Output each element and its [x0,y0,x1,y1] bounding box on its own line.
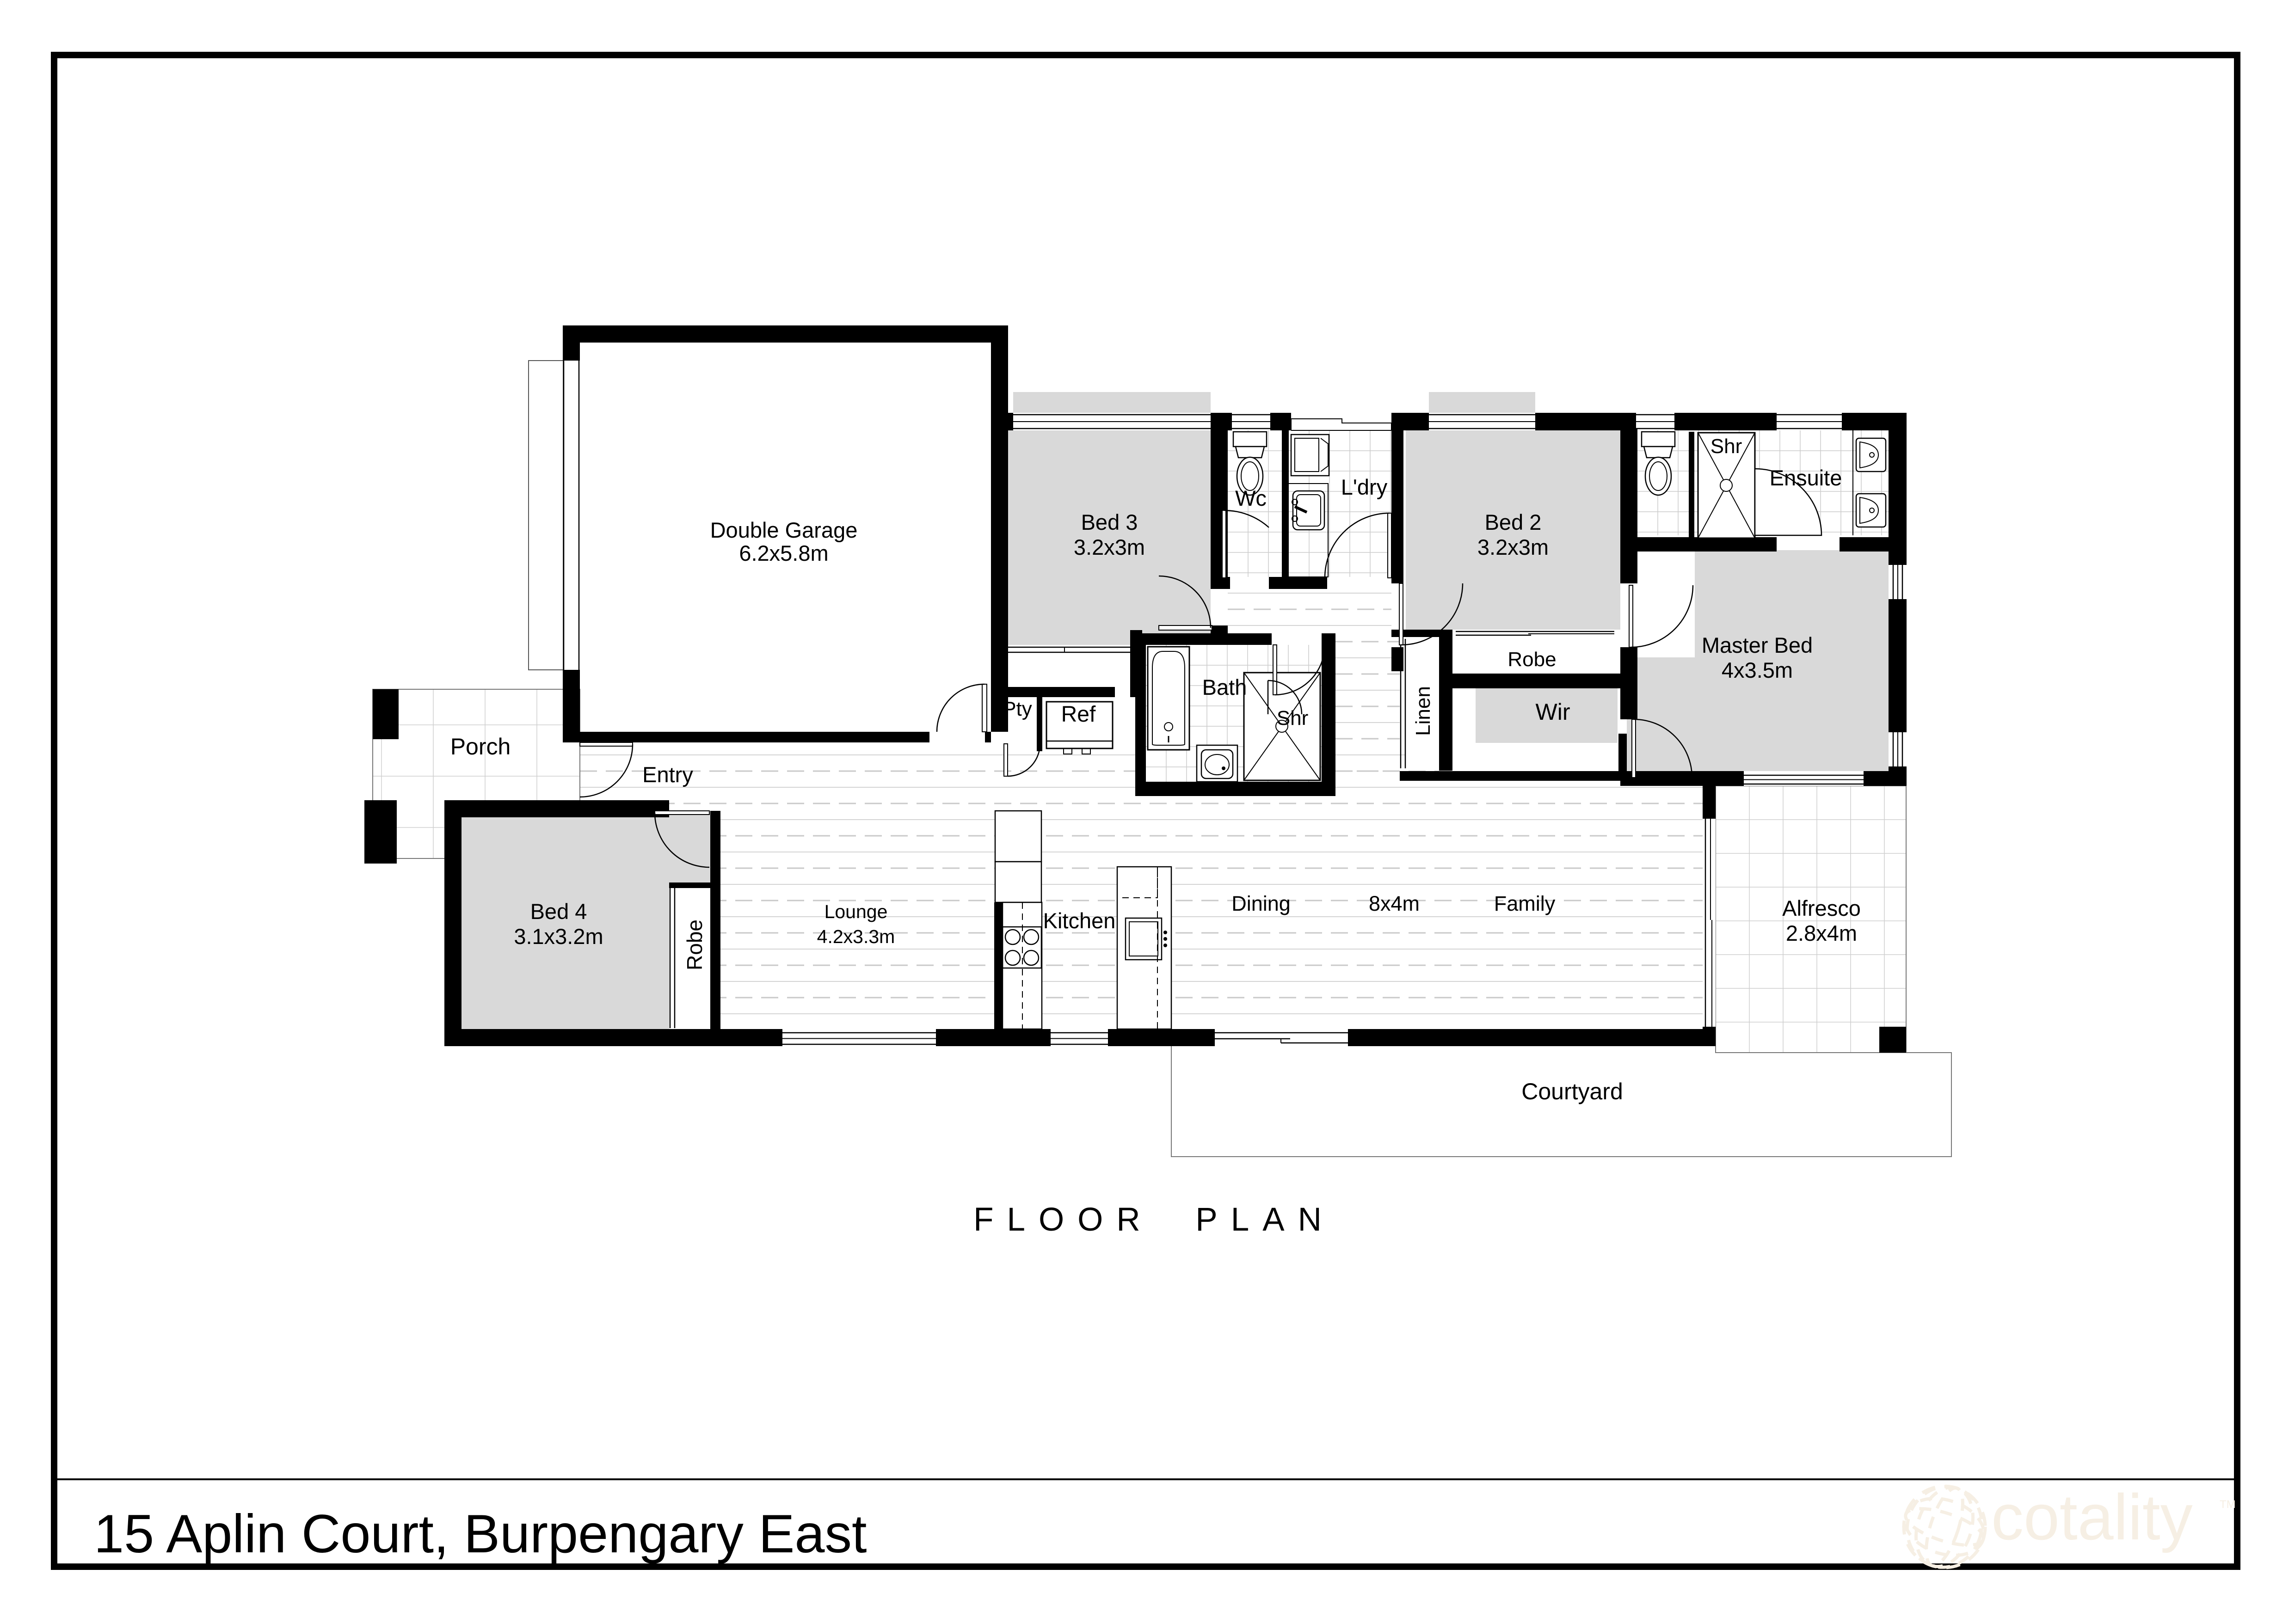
svg-text:Bed 4: Bed 4 [530,899,587,924]
svg-text:8x4m: 8x4m [1369,892,1420,915]
svg-text:Porch: Porch [450,734,511,760]
svg-text:FLOOR PLAN: FLOOR PLAN [973,1201,1335,1238]
svg-text:Kitchen: Kitchen [1043,908,1116,933]
svg-text:Shr: Shr [1710,435,1742,458]
svg-text:3.2x3m: 3.2x3m [1477,535,1549,559]
svg-text:Double Garage: Double Garage [710,518,858,542]
svg-text:Entry: Entry [642,762,693,787]
svg-text:Robe: Robe [1507,648,1556,671]
svg-text:TM: TM [2220,1498,2236,1511]
svg-text:L'dry: L'dry [1341,475,1388,499]
svg-text:Shr: Shr [1277,707,1308,729]
svg-text:Ref: Ref [1061,702,1096,727]
svg-text:cotality: cotality [1991,1481,2193,1553]
svg-text:Alfresco: Alfresco [1782,896,1861,920]
svg-text:15 Aplin Court, Burpengary Eas: 15 Aplin Court, Burpengary East [94,1503,867,1564]
svg-text:3.1x3.2m: 3.1x3.2m [514,924,603,949]
svg-text:2.8x4m: 2.8x4m [1786,921,1857,945]
svg-text:Lounge: Lounge [824,901,888,922]
svg-text:3.2x3m: 3.2x3m [1074,535,1145,559]
svg-text:Dining: Dining [1231,892,1291,915]
svg-text:Master Bed: Master Bed [1702,633,1813,657]
svg-text:Wir: Wir [1536,699,1570,725]
svg-text:4.2x3.3m: 4.2x3.3m [817,926,895,947]
svg-text:Robe: Robe [683,919,707,970]
svg-text:6.2x5.8m: 6.2x5.8m [739,541,828,565]
svg-text:Pty: Pty [1003,698,1032,720]
svg-text:Ensuite: Ensuite [1770,466,1842,490]
svg-text:Family: Family [1494,892,1556,915]
svg-text:Bed 3: Bed 3 [1081,510,1138,534]
svg-text:4x3.5m: 4x3.5m [1722,658,1793,682]
svg-text:Courtyard: Courtyard [1521,1079,1623,1104]
svg-text:Bed 2: Bed 2 [1485,510,1542,534]
svg-text:Bath: Bath [1202,675,1247,699]
svg-text:Linen: Linen [1412,686,1434,736]
svg-text:Wc: Wc [1235,486,1267,510]
